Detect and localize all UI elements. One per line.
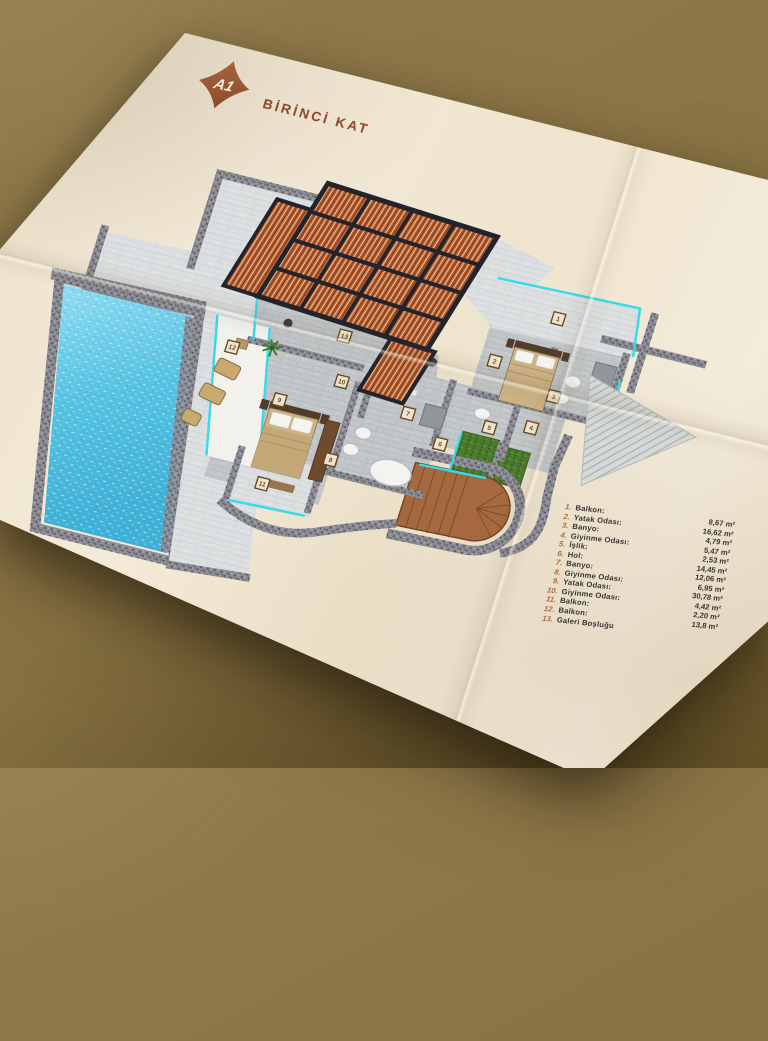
room-marker: 8 — [323, 453, 338, 467]
room-marker: 9 — [272, 393, 287, 407]
room-marker: 4 — [524, 421, 539, 435]
room-marker: 11 — [255, 477, 270, 491]
paper-content-clip: A1 BİRİNCİ KAT — [0, 0, 768, 768]
plan-type-badge: A1 — [187, 55, 261, 116]
legend-item-number: 13. — [539, 613, 554, 624]
room-marker: 3 — [546, 389, 561, 403]
scene: A1 BİRİNCİ KAT — [0, 0, 768, 768]
floor-plan-svg: 12345678910111213 — [0, 106, 768, 780]
room-marker: 10 — [334, 374, 349, 388]
room-marker: 13 — [337, 329, 352, 343]
legend-rows: 1.Balkon:8,67 m²2.Yatak Odası:16,62 m²3.… — [539, 501, 736, 641]
diamond-badge-icon: A1 — [187, 55, 261, 116]
paper-content: A1 BİRİNCİ KAT — [0, 33, 768, 940]
room-marker: 1 — [551, 312, 566, 326]
brochure-sheet: A1 BİRİNCİ KAT — [0, 0, 768, 768]
room-marker: 7 — [400, 406, 415, 420]
room-marker: 2 — [487, 354, 502, 368]
room-marker: 12 — [225, 340, 240, 354]
room-legend: 1.Balkon:8,67 m²2.Yatak Odası:16,62 m²3.… — [539, 501, 736, 641]
room-marker: 6 — [433, 437, 448, 451]
floor-plan: 12345678910111213 — [0, 106, 768, 780]
room-marker: 5 — [482, 421, 497, 435]
page-title: BİRİNCİ KAT — [261, 96, 372, 137]
